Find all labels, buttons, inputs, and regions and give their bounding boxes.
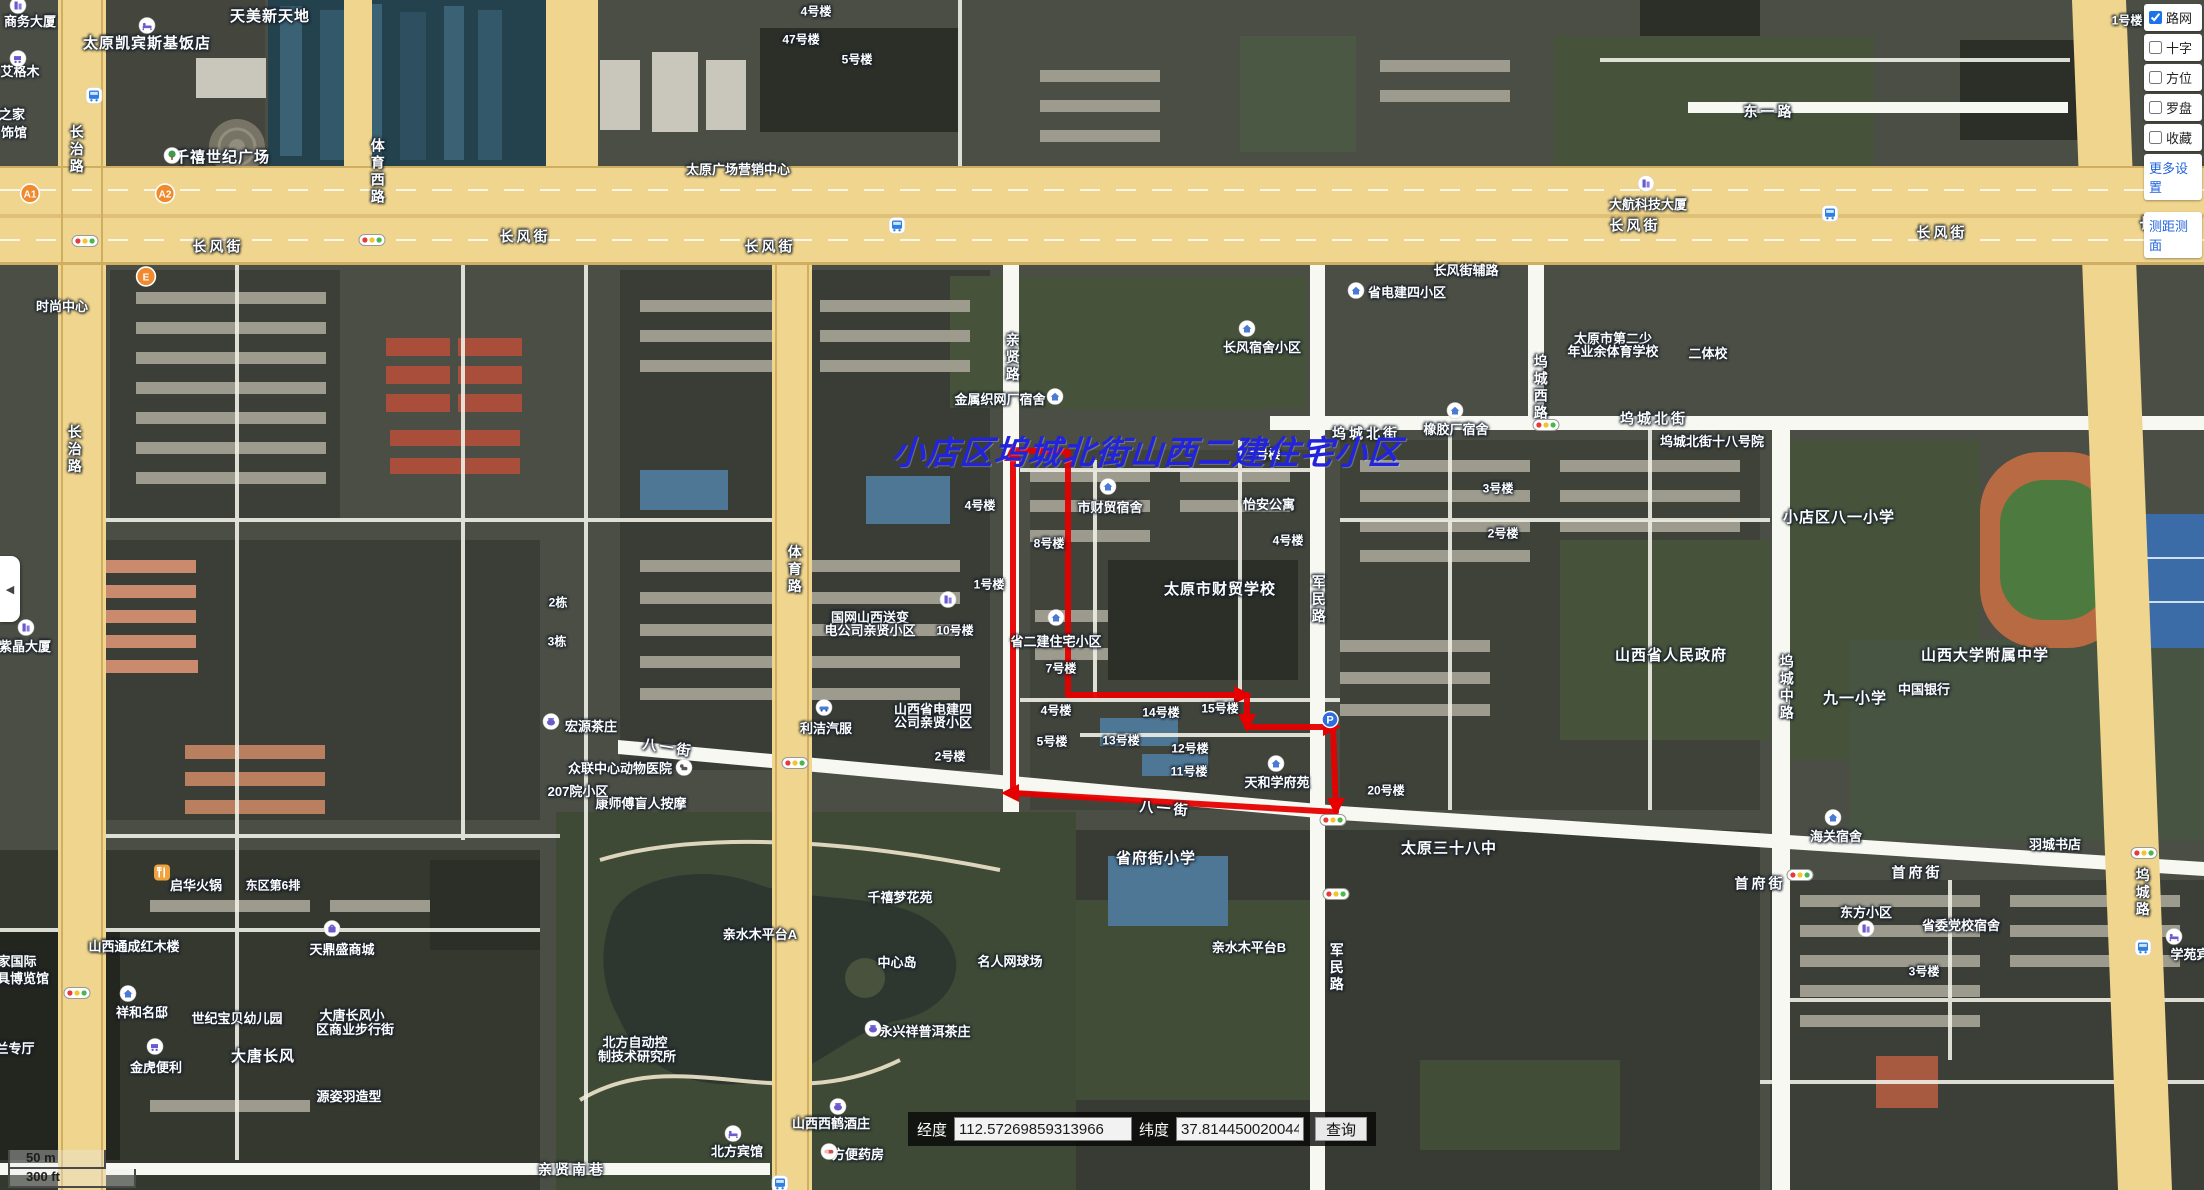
query-button[interactable]: 查询 [1315, 1117, 1367, 1141]
scale-bar: 50 m 300 ft [8, 1150, 136, 1188]
chevron-left-icon: ◀ [6, 583, 14, 596]
coordinate-query-bar: 经度 纬度 查询 [908, 1112, 1376, 1146]
layer-toggle-3[interactable]: 罗盘 [2144, 94, 2202, 121]
layer-checkbox-3[interactable] [2149, 101, 2162, 114]
layer-toggle-4[interactable]: 收藏 [2144, 124, 2202, 151]
construction-site [268, 0, 546, 168]
layer-checkbox-0[interactable] [2149, 11, 2162, 24]
scale-metric: 50 m [8, 1150, 106, 1169]
measure-tool-link[interactable]: 测距测面 [2144, 212, 2202, 258]
longitude-input[interactable] [954, 1117, 1132, 1141]
layer-label: 方位 [2166, 68, 2192, 87]
layer-checkbox-4[interactable] [2149, 131, 2162, 144]
layer-label: 十字 [2166, 38, 2192, 57]
map-viewport[interactable]: 长风街长风街长风街长风街长风街长风街长风街辅路坞城北街坞城北街东一路八一街八一街… [0, 0, 2204, 1190]
more-settings-link[interactable]: 更多设置 [2144, 154, 2202, 200]
layer-toggle-0[interactable]: 路网 [2144, 4, 2202, 31]
layer-label: 路网 [2166, 8, 2192, 27]
layer-checkbox-2[interactable] [2149, 71, 2162, 84]
satellite-map-canvas[interactable] [0, 0, 2204, 1190]
layer-toggle-1[interactable]: 十字 [2144, 34, 2202, 61]
layer-toggle-2[interactable]: 方位 [2144, 64, 2202, 91]
longitude-label: 经度 [917, 1119, 947, 1140]
place-title-overlay: 小店区坞城北街山西二建住宅小区 [890, 426, 1403, 474]
layer-label: 罗盘 [2166, 98, 2192, 117]
layer-checkbox-1[interactable] [2149, 41, 2162, 54]
latitude-label: 纬度 [1139, 1119, 1169, 1140]
latitude-input[interactable] [1176, 1117, 1304, 1141]
sidebar-collapse-tab[interactable]: ◀ [0, 556, 20, 622]
layer-label: 收藏 [2166, 128, 2192, 147]
scale-imperial: 300 ft [8, 1169, 136, 1188]
layer-control-panel: 路网十字方位罗盘收藏 更多设置 测距测面 [2144, 4, 2202, 261]
